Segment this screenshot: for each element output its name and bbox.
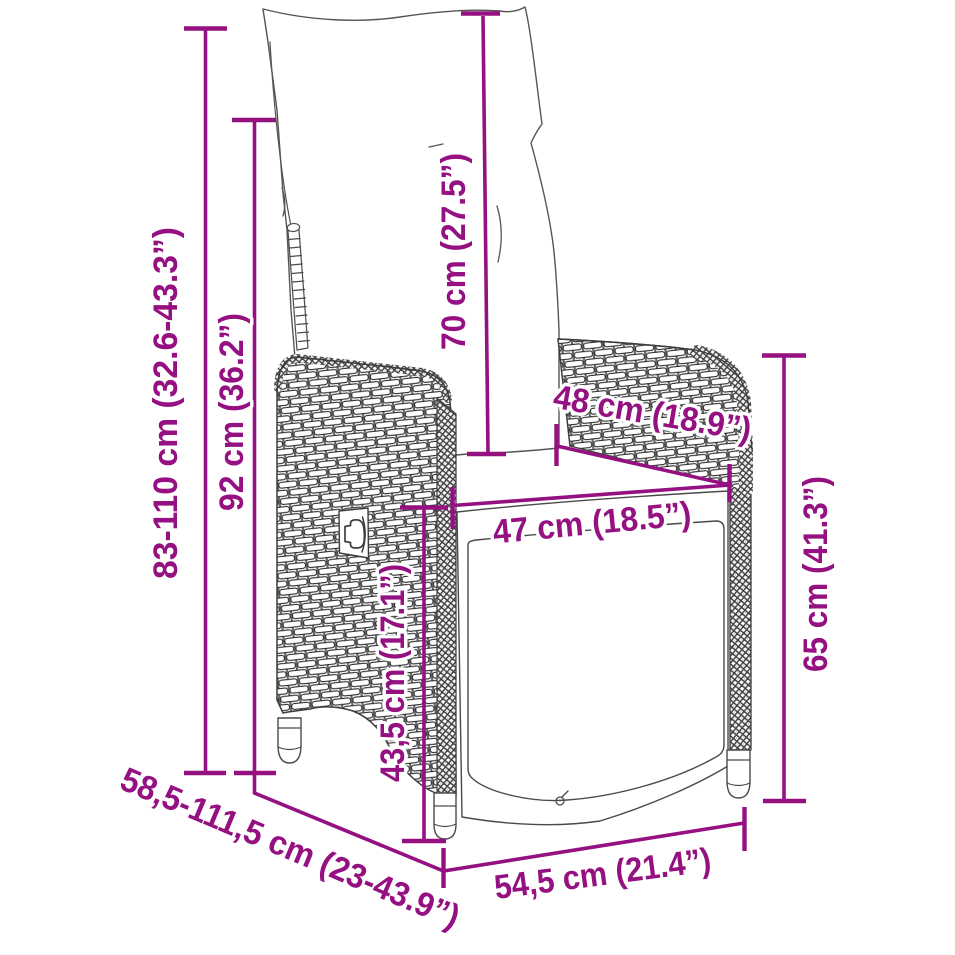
svg-text:43,5 cm (17.1”): 43,5 cm (17.1”) [374, 564, 412, 782]
svg-text:58,5-111,5 cm (23-43.9”): 58,5-111,5 cm (23-43.9”) [115, 760, 465, 936]
svg-text:70 cm (27.5”): 70 cm (27.5”) [435, 153, 473, 350]
svg-text:65 cm (41.3”): 65 cm (41.3”) [797, 476, 835, 672]
svg-text:54,5 cm (21.4”): 54,5 cm (21.4”) [492, 841, 713, 907]
svg-text:83-110 cm (32.6-43.3”): 83-110 cm (32.6-43.3”) [147, 227, 185, 579]
svg-text:92 cm (36.2”): 92 cm (36.2”) [213, 313, 251, 511]
